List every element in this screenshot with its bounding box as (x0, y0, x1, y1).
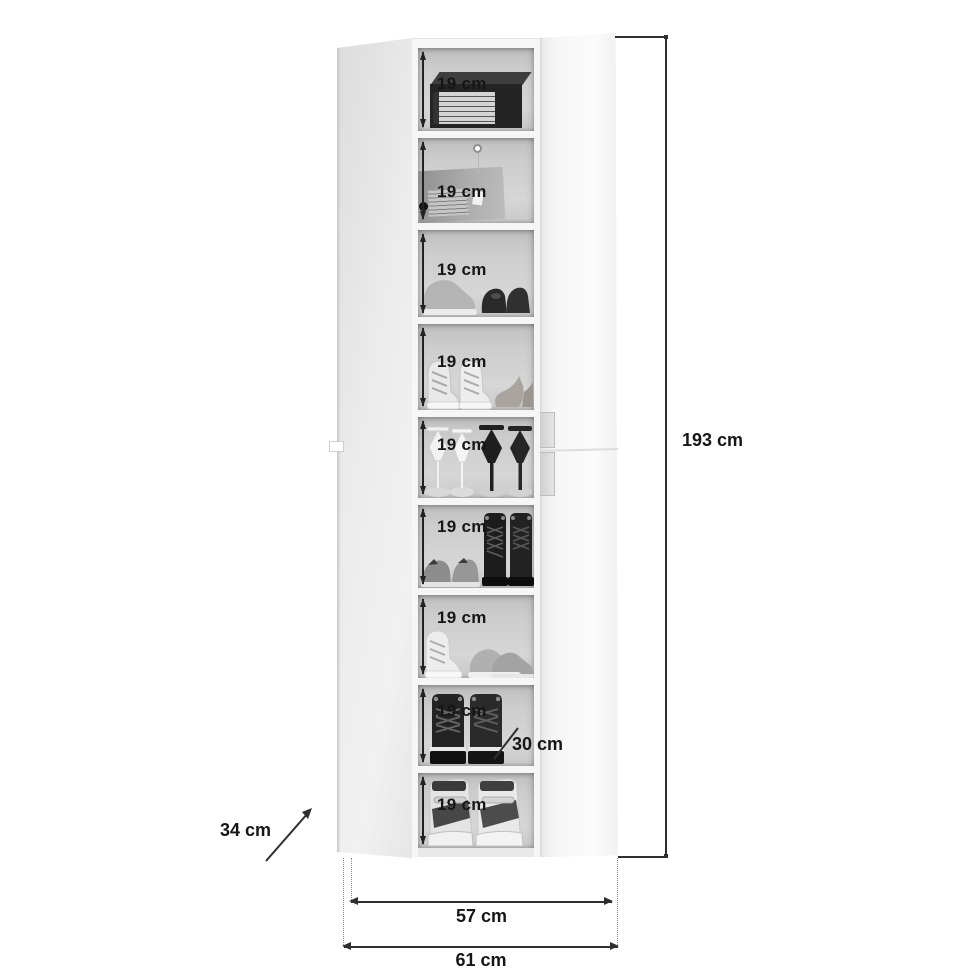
shelf-height-label: 19 cm (437, 435, 487, 455)
height-dim-bottom-tick (618, 856, 666, 858)
dim-arrow-left (349, 897, 358, 905)
right-door-handle-lower (540, 452, 555, 496)
cam-lock-fitting (419, 202, 428, 211)
shelf-compartment-7: 19 cm (418, 595, 534, 678)
shelf-height-label: 19 cm (437, 260, 487, 280)
shoe-box-label (433, 92, 495, 124)
extension-line (351, 858, 352, 902)
shelf-height-label: 19 cm (437, 182, 487, 202)
shelf-height-label: 19 cm (437, 517, 487, 537)
outer-width-label: 61 cm (344, 950, 618, 971)
dim-arrow-left (342, 942, 351, 950)
outer-width-dim-line (344, 946, 618, 948)
height-arrow (422, 142, 424, 219)
right-door-handle-upper (540, 412, 555, 448)
extension-line (343, 858, 344, 947)
total-height-label: 193 cm (682, 430, 743, 451)
height-arrow (422, 52, 424, 127)
height-arrow (422, 689, 424, 762)
furniture-dimension-diagram: 19 cm 19 cm 19 cm (0, 0, 970, 971)
height-dim-line (665, 36, 667, 857)
shelf-compartment-1: 19 cm (418, 48, 534, 131)
height-dim-top-tick (615, 36, 666, 38)
dim-arrow-right (604, 897, 613, 905)
height-arrow (422, 421, 424, 494)
height-arrow (422, 509, 424, 584)
shelf-compartment-9: 19 cm (418, 773, 534, 848)
stiletto-heels-illustration (418, 417, 534, 498)
height-arrow (422, 777, 424, 844)
shelf-compartment-3: 19 cm (418, 230, 534, 317)
inner-width-dim-line (351, 901, 612, 903)
hang-tag-pin (473, 144, 482, 153)
shelf-compartment-6: 19 cm (418, 505, 534, 588)
height-arrow (422, 234, 424, 313)
shelf-height-label: 19 cm (437, 74, 487, 94)
cabinet-base-panel (418, 848, 534, 857)
height-arrow (422, 328, 424, 406)
dim-dot (664, 854, 668, 858)
shelf-height-label: 19 cm (437, 352, 487, 372)
dim-arrow-right (610, 942, 619, 950)
shelf-height-label: 19 cm (437, 795, 487, 815)
extension-line (617, 858, 618, 947)
shelf-compartment-2: 19 cm (418, 138, 534, 223)
shelf-height-label: 19 cm (437, 701, 487, 721)
shelf-compartment-5: 19 cm (418, 417, 534, 498)
shelf-height-label: 19 cm (437, 608, 487, 628)
open-left-door (337, 36, 412, 858)
inner-width-label: 57 cm (351, 906, 612, 927)
left-door-handle (329, 441, 344, 452)
shelf-compartment-4: 19 cm (418, 324, 534, 410)
shelf-depth-label: 30 cm (512, 734, 563, 755)
height-arrow (422, 599, 424, 674)
depth-arrow (258, 802, 320, 868)
dim-dot (664, 35, 668, 39)
